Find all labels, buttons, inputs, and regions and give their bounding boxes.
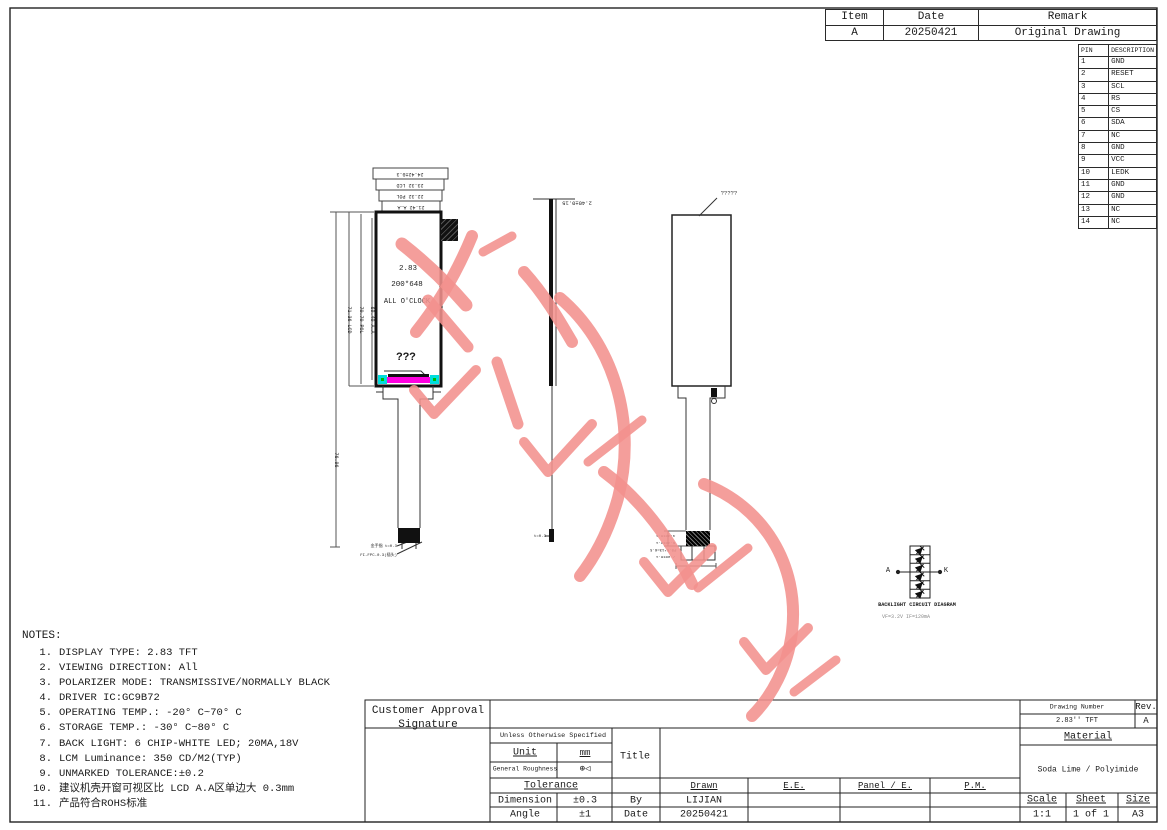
signature-label: Signature [398,719,457,731]
bonding-green-dot-right [433,378,436,381]
revision-header-remark: Remark [979,10,1157,26]
sheet-value: 1 of 1 [1073,810,1109,821]
front-dim-total-height: 76.96 [333,452,339,467]
pin-header: PIN [1079,45,1109,57]
display-size-label: 2.83 [399,265,417,273]
bonding-cyan-right [430,375,439,384]
backlight-caption: BACKLIGHT CIRCUIT DIAGRAM [878,602,956,608]
date-label: Date [624,810,648,821]
customer-approval-label: Customer Approval [372,705,484,717]
pin-table-body: 1GND2RESET3SCL4RS5CS6SDA7NC8GND9VCC10LED… [1079,57,1157,229]
revision-row: A20250421Original Drawing [826,25,1157,41]
pin-row: 4RS [1079,93,1157,105]
size-label: Size [1126,795,1150,806]
note-item: 1.DISPLAY TYPE: 2.83 TFT [22,646,367,661]
by-label: By [630,796,642,807]
front-dim-outline-width: 24.42±0.3 [396,171,423,177]
front-hatched-block [441,219,458,241]
fpc-label-1: 金手指 t=0.3 [350,543,397,549]
drawing-number-value: 2.83'' TFT [1056,717,1098,725]
notes-list: 1.DISPLAY TYPE: 2.83 TFT2.VIEWING DIRECT… [22,646,367,812]
front-fpc-connector [398,528,420,543]
notes-title: NOTES: [22,630,367,642]
note-item: 11.产品符合ROHS标准 [22,797,367,812]
revision-table-body: Item Date Remark A20250421Original Drawi… [826,10,1157,41]
material-value: Soda Lime / Polyimide [1038,766,1139,775]
note-item: 3.POLARIZER MODE: TRANSMISSIVE/NORMALLY … [22,676,367,691]
backlight-spec: VF=3.2V IF=120mA [882,614,930,620]
pin-row: 13NC [1079,204,1157,216]
angle-value: ±1 [579,810,591,821]
note-item: 10.建议机壳开窗可视区比 LCD A.A区单边大 0.3mm [22,782,367,797]
backlight-anode-label: A [886,567,890,575]
drawn-label: Drawn [690,781,717,791]
back-dim-4: 7.90±0.1 [656,554,684,558]
pin-row: 7NC [1079,130,1157,142]
display-resolution-label: 200*648 [391,281,423,289]
scale-label: Scale [1027,795,1057,806]
date-value: 20250421 [680,810,728,821]
pm-label: P.M. [964,781,986,791]
tolerance-label: Tolerance [524,781,578,792]
back-dim-3: P0.5*13=6.5 [650,547,684,551]
front-dim-aa-height: 69.40 A.A [369,306,375,333]
front-dim-lcd-height: 71.36 LCD [346,306,352,333]
bonding-green-dot-left [381,378,384,381]
front-dim-pol-height: 70.70 POL [358,306,364,333]
panel-e-label: Panel / E. [858,781,912,791]
general-roughness-label: General Roughness [493,766,557,773]
dimension-label: Dimension [498,796,552,807]
pin-table-header-row: PIN DESCRIPTION [1079,45,1157,57]
pin-row: 12GND [1079,192,1157,204]
material-label: Material [1064,732,1112,743]
note-item: 5.OPERATING TEMP.: -20° C~70° C [22,706,367,721]
side-glass-bar [549,199,553,386]
side-thickness-dim: 2.40±0.15 [562,200,592,207]
unit-label: Unit [513,748,537,759]
pin-row: 5CS [1079,106,1157,118]
backlight-cathode-label: K [944,567,948,575]
back-top-label: ????? [721,190,738,197]
pin-row: 1GND [1079,57,1157,69]
unless-otherwise-label: Unless Otherwise Specified [500,732,606,740]
note-item: 4.DRIVER IC:GC9B72 [22,691,367,706]
led-symbols [914,545,925,600]
drawing-number-label: Drawing Number [1050,704,1105,711]
revision-table: Item Date Remark A20250421Original Drawi… [825,9,1157,41]
note-item: 7.BACK LIGHT: 6 CHIP-WHITE LED; 20MA,18V [22,737,367,752]
revision-header-date: Date [884,10,979,26]
front-dim-aa-width: 21.42 A.A [397,204,424,210]
note-item: 2.VIEWING DIRECTION: All [22,661,367,676]
scale-value: 1:1 [1033,810,1051,821]
pin-row: 11GND [1079,179,1157,191]
roughness-icon: ⊕◁ [580,764,591,774]
angle-label: Angle [510,810,540,821]
pin-row: 6SDA [1079,118,1157,130]
note-item: 9.UNMARKED TOLERANCE:±0.2 [22,767,367,782]
description-header: DESCRIPTION [1109,45,1157,57]
back-outline [672,215,731,386]
bonding-magenta-bar [387,377,430,383]
note-item: 6.STORAGE TEMP.: -30° C~80° C [22,721,367,736]
back-pin-detail [711,388,717,397]
pin-row: 2RESET [1079,69,1157,81]
revision-header-item: Item [826,10,884,26]
back-fpc-connector [686,531,710,546]
pin-row: 8GND [1079,143,1157,155]
ee-label: E.E. [783,781,805,791]
side-connector-end [549,529,554,542]
front-bonding-strip [378,374,439,384]
pin-table: PIN DESCRIPTION 1GND2RESET3SCL4RS5CS6SDA… [1078,44,1157,229]
back-dim-2: 6.30±0.1 [656,540,684,544]
revision-header-row: Item Date Remark [826,10,1157,26]
display-clock-label: ALL O'CLOCK [384,298,430,306]
pin-row: 9VCC [1079,155,1157,167]
title-label: Title [620,752,650,763]
notes-block: NOTES: 1.DISPLAY TYPE: 2.83 TFT2.VIEWING… [22,630,367,812]
bonding-cyan-left [378,375,387,384]
pin-row: 3SCL [1079,81,1157,93]
display-unknown-label: ??? [396,352,416,364]
rev-value: A [1143,716,1148,726]
side-bottom-dim: t=0.3 [534,535,546,539]
front-dim-pol-width: 22.32 POL [396,193,423,199]
drawing-sheet: Item Date Remark A20250421Original Drawi… [0,0,1167,830]
note-item: 8.LCM Luminance: 350 CD/M2(TYP) [22,752,367,767]
fpc-label-2: FI-FPC-0.3(插头) [340,552,397,558]
rev-label: Rev. [1135,702,1157,712]
back-dim-1: 4.30±0.1 [656,533,684,537]
sheet-label: Sheet [1076,795,1106,806]
size-value: A3 [1132,810,1144,821]
by-value: LIJIAN [686,796,722,807]
unit-value: mm [580,748,591,758]
front-dim-lcd-width: 23.32 LCD [396,182,423,188]
pin-row: 10LEDK [1079,167,1157,179]
dimension-value: ±0.3 [573,796,597,807]
pin-row: 14NC [1079,216,1157,228]
